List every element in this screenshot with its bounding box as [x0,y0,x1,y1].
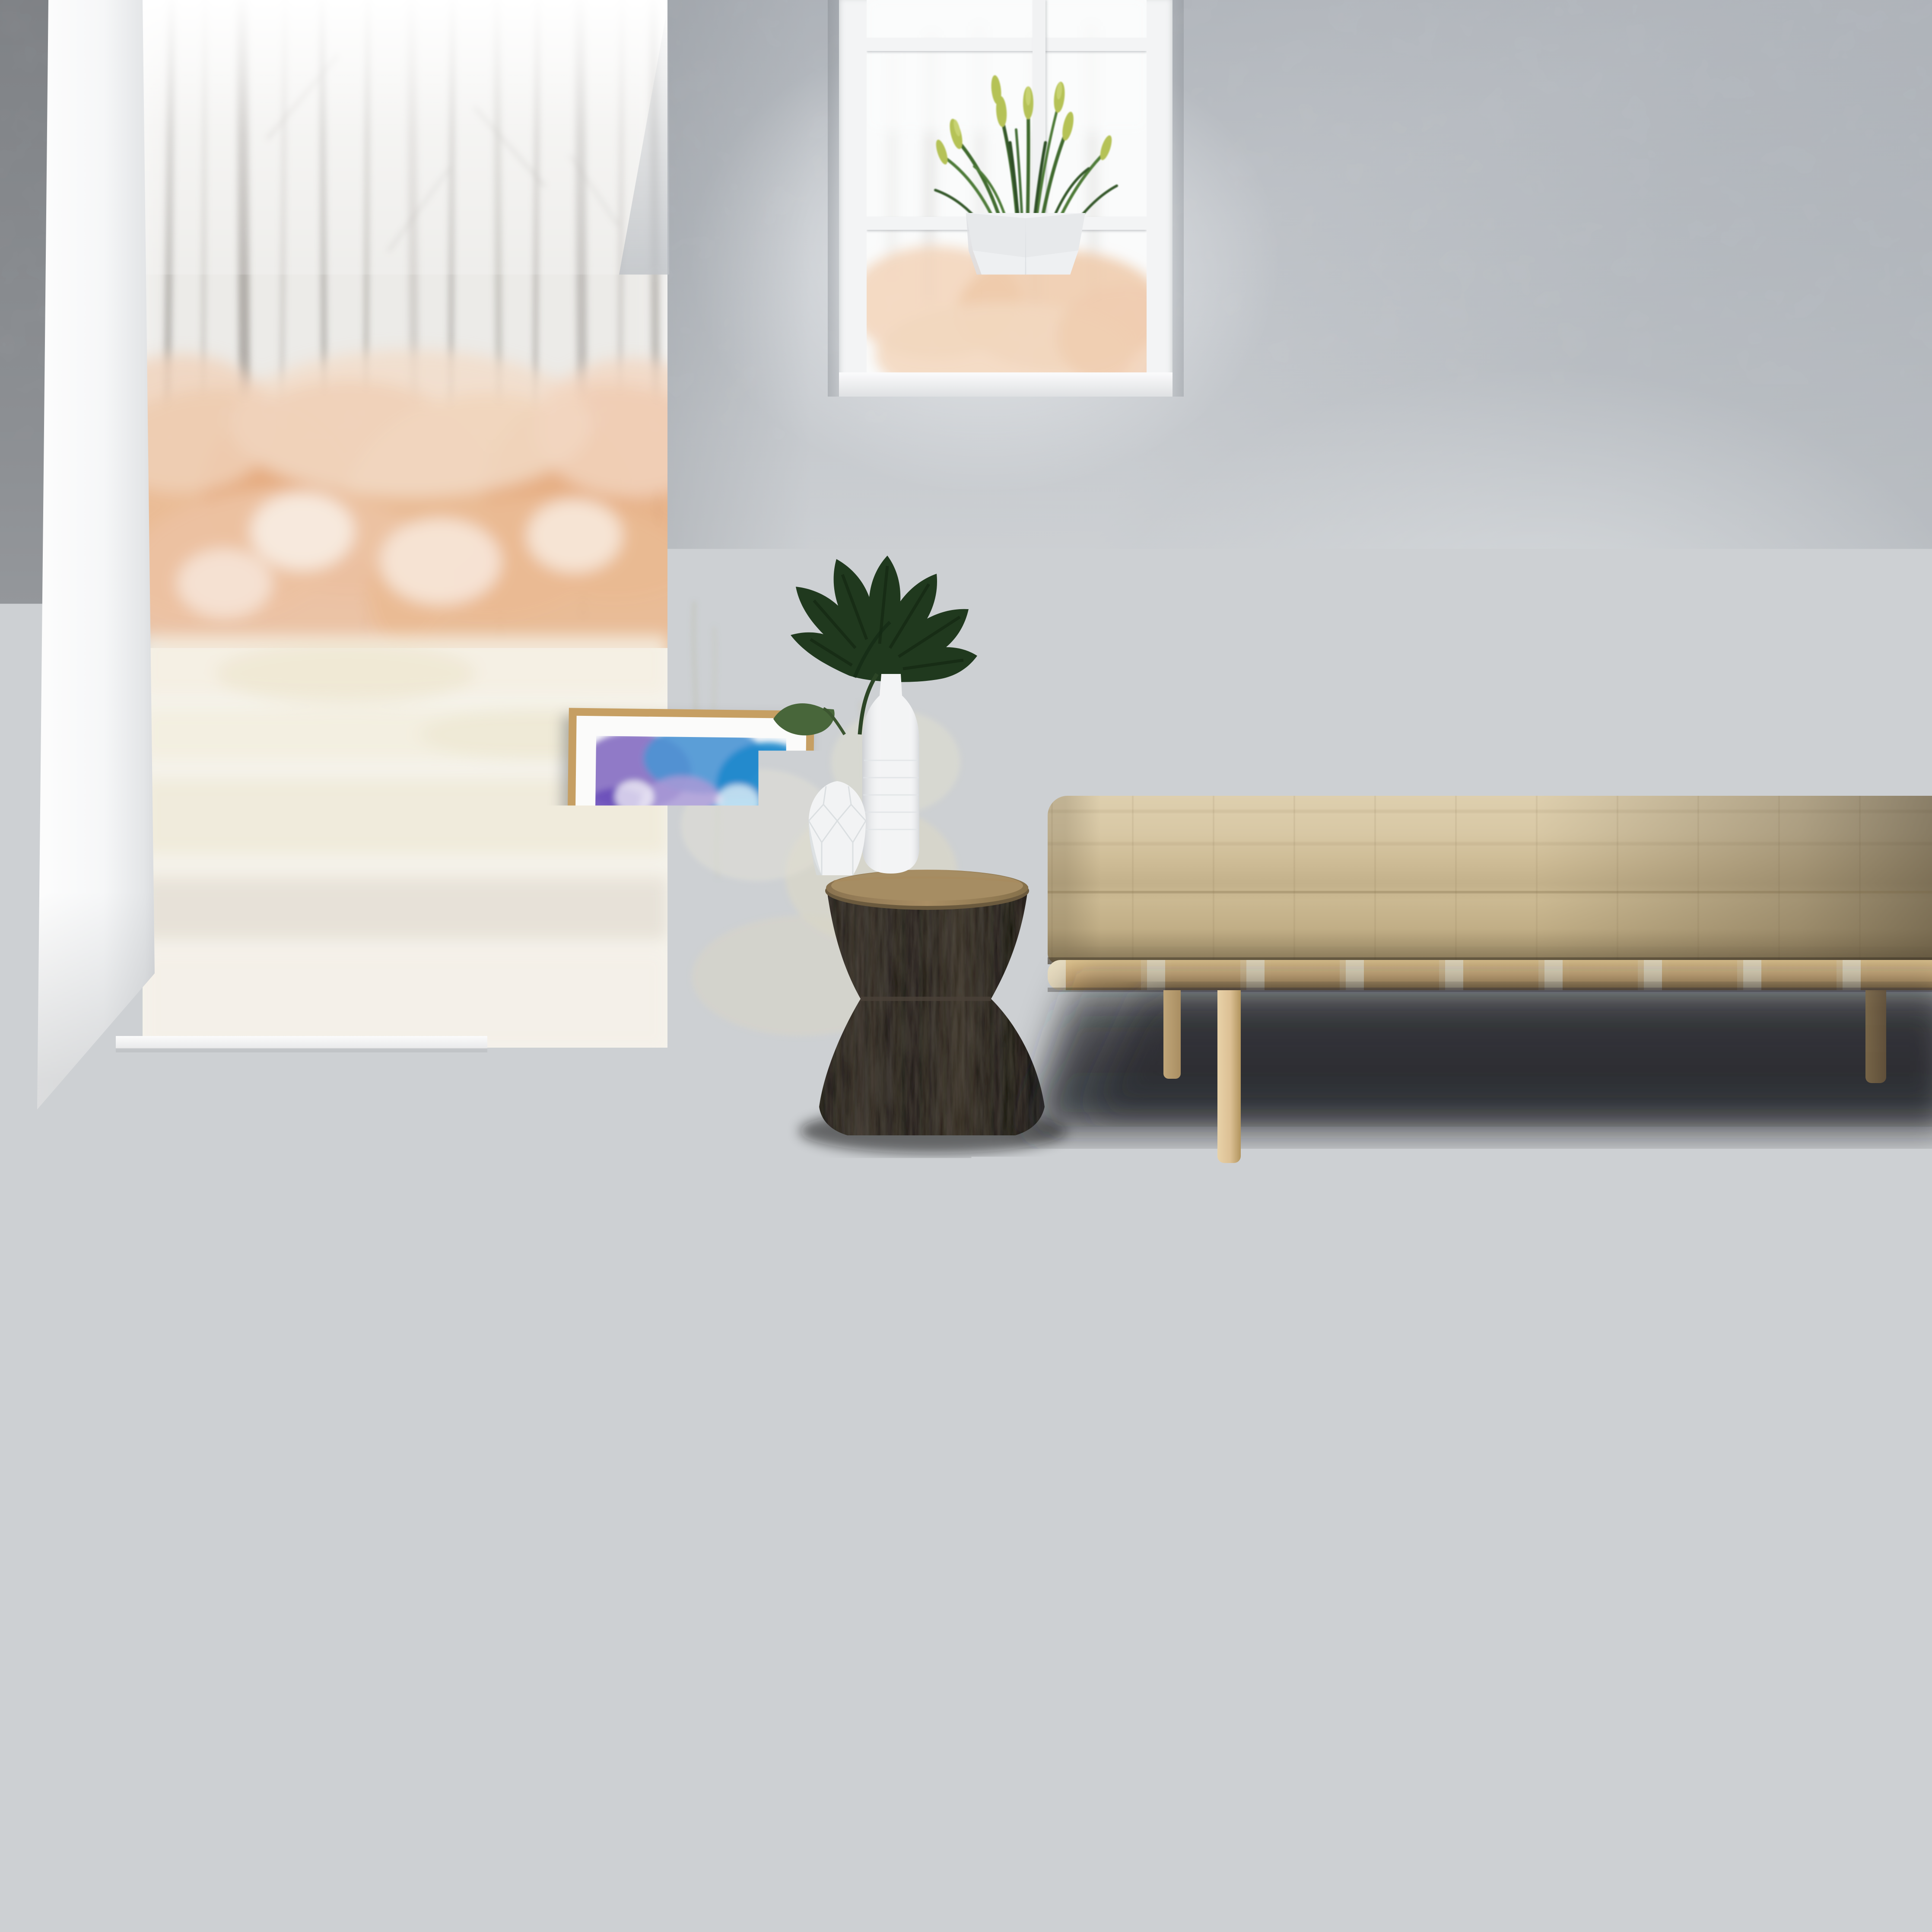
svg-text:MADE IN EUROPE: MADE IN EUROPE [335,1176,1014,1266]
svg-text:PFLEGELEICHT: PFLEGELEICHT [66,1673,658,1764]
svg-text:NACHHALTIG: NACHHALTIG [1340,1443,1871,1534]
